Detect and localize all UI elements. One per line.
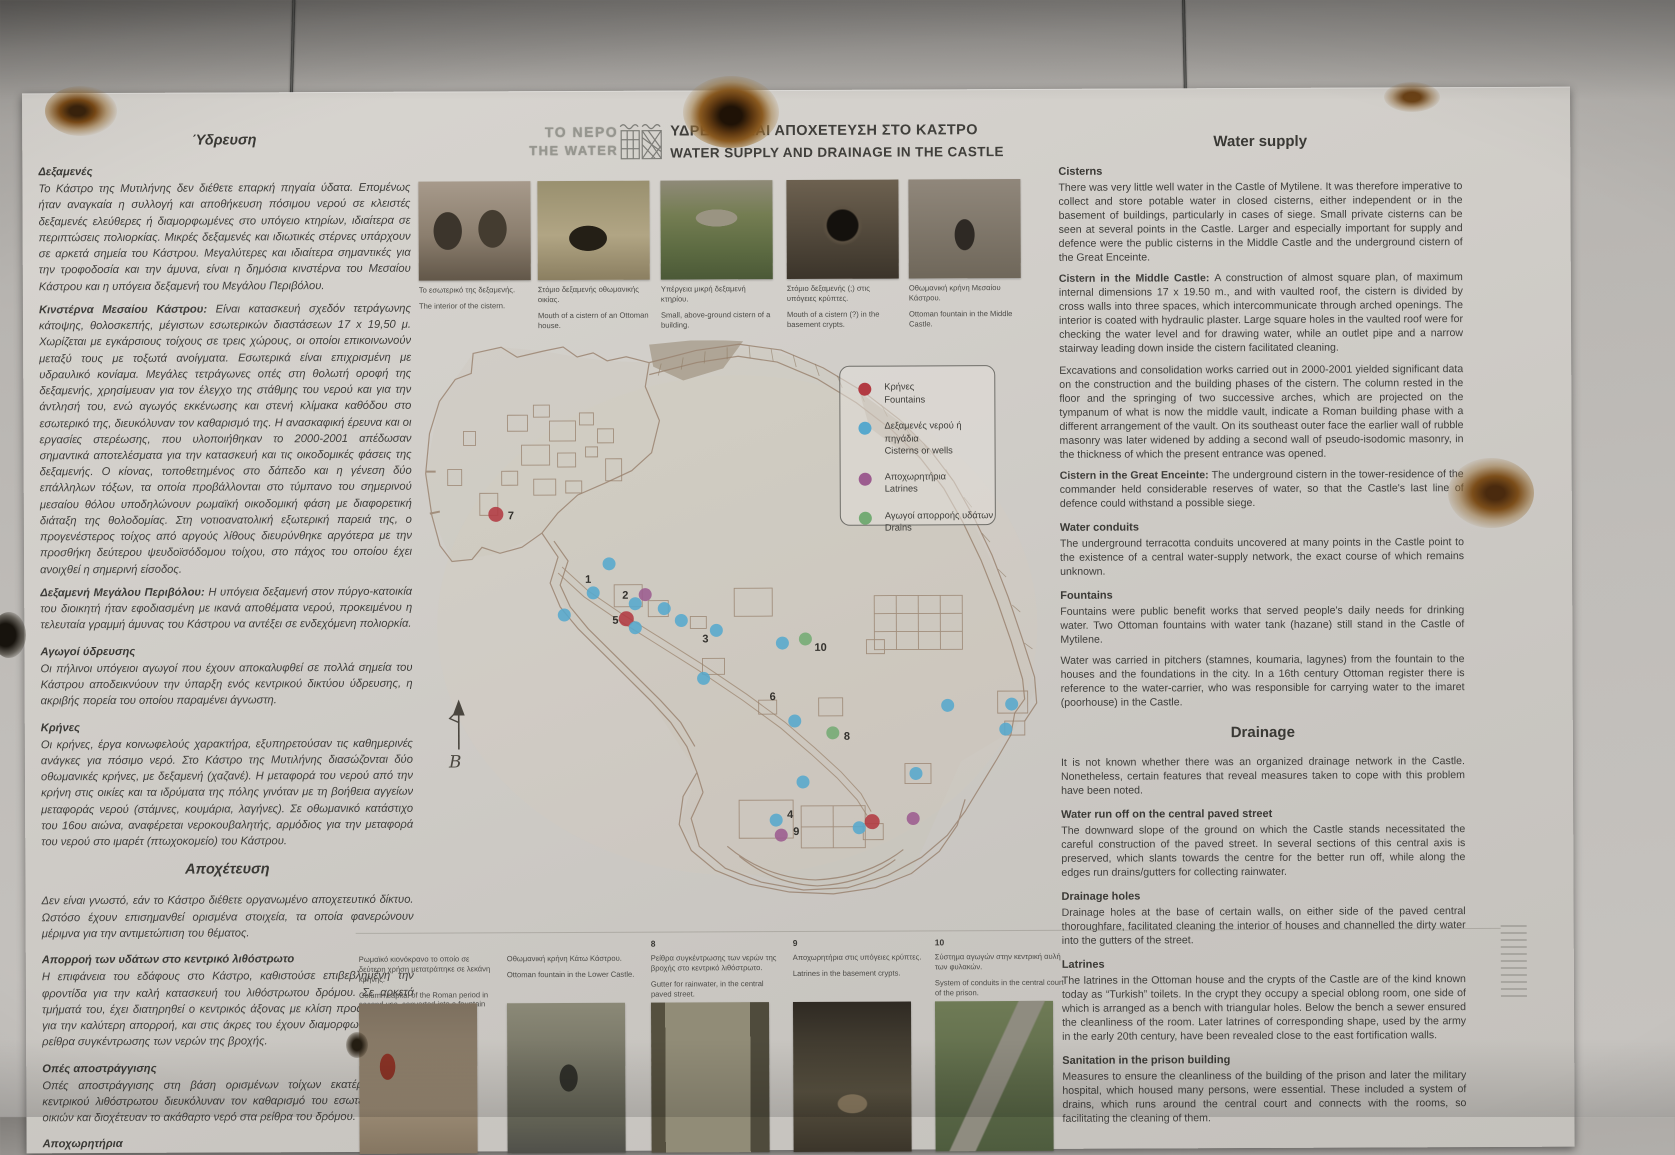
paragraph-lead: Cistern in the Great Enceinte: (1060, 469, 1212, 482)
wall-background: ΤΟ ΝΕΡΟ THE WATER ΥΔΡΕΥΣΗ ΚΑΙ ΑΠΟΧΕΤΕΥΣΗ… (0, 0, 1675, 1117)
legend-label: ΚρήνεςFountains (884, 380, 994, 406)
map-location-number: 6 (770, 691, 776, 703)
top-photo-block: Στόμιο δεξαμενής οθωμανικής οικίας.Mouth… (537, 181, 650, 331)
paragraph: Κινστέρνα Μεσαίου Κάστρου: Είναι κατασκε… (39, 301, 412, 579)
map-marker-number: 4 (787, 809, 794, 821)
photo-caption-greek: Στόμιο δεξαμενής οθωμανικής οικίας. (538, 285, 650, 305)
photo-thumbnail (359, 1003, 478, 1154)
map-marker (1005, 698, 1018, 711)
paragraph: Cistern in the Great Enceinte: The under… (1060, 467, 1464, 511)
section-heading: Fountains (1060, 587, 1464, 603)
photo-caption-greek: Ρωμαϊκό κιονόκρανο το οποίο σε δεύτερη χ… (359, 954, 493, 984)
photo-number (359, 939, 493, 950)
section-title: Drainage (1061, 722, 1465, 744)
paragraph: Drainage holes at the base of certain wa… (1062, 904, 1466, 948)
paragraph: Το Κάστρο της Μυτιλήνης δεν διέθετε επαρ… (38, 180, 410, 295)
hanging-wire-left (290, 0, 296, 102)
legend-color-dot (859, 472, 872, 485)
section-title: Ύδρευση (38, 130, 410, 153)
legend-label: ΑποχωρητήριαLatrines (885, 470, 995, 496)
legend-label-english: Latrines (885, 482, 995, 495)
map-marker (999, 723, 1012, 736)
map-marker (826, 726, 839, 739)
map-marker (853, 821, 866, 834)
photo-thumbnail (935, 1001, 1054, 1152)
bottom-photo-block: Οθωμανική κρήνη Κάτω Κάστρου.Ottoman fou… (507, 939, 641, 980)
map-marker-number: 8 (844, 731, 850, 743)
map-marker (587, 586, 600, 599)
paragraph: The downward slope of the ground on whic… (1061, 822, 1465, 880)
logo-text-english: THE WATER (529, 143, 618, 158)
photo-caption-greek: Σύστημα αγωγών στην κεντρική αυλή των φυ… (935, 952, 1069, 972)
paragraph: The underground terracotta conduits unco… (1060, 535, 1464, 579)
bottom-photo-block: 8Ρείθρα συγκέντρωσης των νερών της βροχή… (651, 938, 785, 999)
legend-item: ΚρήνεςFountains (858, 380, 994, 407)
map-marker (603, 557, 616, 570)
photo-caption-english: Mouth of a cistern of an Ottoman house. (538, 310, 650, 330)
photo-number: 10 (935, 937, 1069, 948)
photo-thumbnail (660, 180, 772, 279)
photo-caption-greek: Υπέργεια μικρή δεξαμενή κτηρίου. (661, 284, 773, 304)
map-marker-number: 7 (508, 510, 514, 522)
top-photo-block: Το εσωτερικό της δεξαμενής.The interior … (418, 181, 531, 311)
map-legend: ΚρήνεςFountainsΔεξαμενές νερού ή πηγάδια… (839, 365, 996, 526)
map-marker (776, 637, 789, 650)
section-heading: Κρήνες (41, 718, 413, 736)
legend-label-english: Fountains (884, 393, 994, 406)
paragraph-lead: Cistern in the Middle Castle: (1059, 272, 1215, 285)
paragraph: Water was carried in pitchers (stamnes, … (1060, 652, 1464, 710)
photo-caption-english: The interior of the cistern. (419, 301, 531, 311)
paragraph: Οι πήλινοι υπόγειοι αγωγοί που έχουν απο… (40, 659, 412, 709)
credits-small-print (1501, 925, 1527, 1001)
photo-thumbnail (908, 179, 1020, 278)
map-marker (907, 812, 920, 825)
section-heading: Δεξαμενές (38, 163, 410, 181)
legend-label-greek: Δεξαμενές νερού ή πηγάδια (884, 419, 994, 445)
paragraph: There was very little well water in the … (1058, 179, 1462, 265)
map-marker-number: 1 (585, 574, 591, 586)
photo-thumbnail (651, 1002, 770, 1153)
legend-color-dot (858, 383, 871, 396)
map-marker (658, 602, 671, 615)
map-marker (558, 608, 571, 621)
dark-spot (0, 612, 26, 658)
bottom-photo-block: 9Αποχωρητήρια στις υπόγειες κρύπτες.Latr… (793, 937, 927, 978)
legend-item: Δεξαμενές νερού ή πηγάδιαCisterns or wel… (858, 419, 994, 457)
photo-caption-greek: Ρείθρα συγκέντρωσης των νερών της βροχής… (651, 953, 785, 973)
map-marker-number: 2 (622, 590, 628, 602)
legend-color-dot (859, 511, 872, 524)
map-marker (796, 775, 809, 788)
map-marker (909, 767, 922, 780)
photo-thumbnail (418, 181, 530, 280)
photo-caption-greek: Οθωμανική κρήνη Μεσαίου Κάστρου. (909, 283, 1021, 303)
legend-label: Δεξαμενές νερού ή πηγάδιαCisterns or wel… (884, 419, 994, 457)
photo-caption-english: Ottoman fountain in the Middle Castle. (909, 309, 1021, 329)
hanging-wire-right (1182, 0, 1187, 97)
legend-label-english: Drains (885, 521, 995, 534)
legend-label-english: Cisterns or wells (885, 444, 995, 457)
legend-label: Αγωγοί απορροής υδάτωνDrains (885, 509, 995, 535)
photo-thumbnail (507, 1003, 626, 1154)
map-marker (710, 624, 723, 637)
section-heading: Sanitation in the prison building (1062, 1052, 1466, 1068)
water-logo-icon (618, 121, 664, 163)
map-marker-number: 5 (612, 615, 618, 627)
panel-title-english: WATER SUPPLY AND DRAINAGE IN THE CASTLE (670, 144, 1004, 160)
section-heading: Αγωγοί ύδρευσης (40, 642, 412, 660)
map-marker (629, 621, 642, 634)
paragraph: Excavations and consolidation works carr… (1059, 362, 1463, 462)
legend-label-greek: Αγωγοί απορροής υδάτων (885, 509, 995, 522)
photo-number: 8 (651, 938, 785, 949)
photo-caption-english: System of conduits in the central court … (935, 978, 1069, 998)
paragraph: The latrines in the Ottoman house and th… (1062, 972, 1466, 1044)
legend-color-dot (858, 422, 871, 435)
panel-title-greek: ΥΔΡΕΥΣΗ ΚΑΙ ΑΠΟΧΕΤΕΥΣΗ ΣΤΟ ΚΑΣΤΡΟ (670, 122, 978, 139)
logo-text-greek: ΤΟ ΝΕΡΟ (545, 124, 618, 140)
photo-caption-greek: Αποχωρητήρια στις υπόγειες κρύπτες. (793, 952, 927, 962)
map-marker-number: 3 (702, 633, 708, 645)
legend-item: ΑποχωρητήριαLatrines (859, 470, 995, 497)
bottom-photo-block: 10Σύστημα αγωγών στην κεντρική αυλή των … (935, 937, 1069, 998)
english-text-column: Water supplyCisternsThere was very littl… (1058, 117, 1466, 1134)
map-marker (629, 597, 642, 610)
photo-caption-english: Small, above-ground cistern of a buildin… (661, 310, 773, 330)
photo-caption-greek: Το εσωτερικό της δεξαμενής. (419, 285, 531, 295)
map-marker (488, 507, 503, 522)
map-marker (941, 699, 954, 712)
map-marker-number: 10 (814, 642, 826, 654)
paragraph: Οι κρήνες, έργα κοινωφελούς χαρακτήρα, ε… (41, 735, 413, 850)
photo-caption-greek: Οθωμανική κρήνη Κάτω Κάστρου. (507, 954, 641, 964)
paragraph-lead: Κινστέρνα Μεσαίου Κάστρου: (39, 303, 216, 316)
photo-caption-greek: Στόμιο δεξαμενής (;) στις υπόγειες κρύπτ… (787, 284, 899, 304)
paragraph: Measures to ensure the cleanliness of th… (1062, 1068, 1466, 1126)
legend-label-greek: Κρήνες (884, 380, 994, 393)
paragraph: Fountains were public benefit works that… (1060, 603, 1464, 647)
photo-number: 9 (793, 937, 927, 948)
legend-label-greek: Αποχωρητήρια (885, 470, 995, 483)
photo-thumbnail (537, 181, 649, 280)
photo-caption-english: Mouth of a cistern (?) in the basement c… (787, 309, 899, 329)
legend-item: Αγωγοί απορροής υδάτωνDrains (859, 509, 995, 536)
top-photo-block: Οθωμανική κρήνη Μεσαίου Κάστρου.Ottoman … (908, 179, 1021, 329)
map-marker (639, 588, 652, 601)
section-heading: Cisterns (1058, 163, 1462, 179)
paragraph: Δεν είναι γνωστό, εάν το Κάστρο διέθετε … (41, 892, 413, 942)
photo-caption-english: Latrines in the basement crypts. (793, 968, 927, 978)
bottom-photo-block: Ρωμαϊκό κιονόκρανο το οποίο σε δεύτερη χ… (359, 939, 493, 1020)
map-marker (775, 829, 788, 842)
section-heading: Water run off on the central paved stree… (1061, 807, 1465, 823)
map-marker (697, 672, 710, 685)
map-marker-number: 9 (793, 826, 799, 838)
north-label: B (448, 752, 462, 772)
section-heading: Latrines (1062, 956, 1466, 972)
paragraph: Δεξαμενή Μεγάλου Περιβόλου: Η υπόγεια δε… (40, 584, 412, 634)
photo-caption-english: Gutter for rainwater, in the central pav… (651, 979, 785, 999)
section-title: Αποχέτευση (41, 859, 413, 882)
top-photo-block: Στόμιο δεξαμενής (;) στις υπόγειες κρύπτ… (786, 180, 899, 330)
map-marker (788, 714, 801, 727)
photo-caption-english: Ottoman fountain in the Lower Castle. (507, 970, 641, 980)
paragraph: It is not known whether there was an org… (1061, 754, 1465, 798)
top-photo-block: Υπέργεια μικρή δεξαμενή κτηρίου.Small, a… (660, 180, 773, 330)
information-panel: ΤΟ ΝΕΡΟ THE WATER ΥΔΡΕΥΣΗ ΚΑΙ ΑΠΟΧΕΤΕΥΣΗ… (22, 87, 1575, 1154)
paragraph-lead: Δεξαμενή Μεγάλου Περιβόλου: (40, 586, 208, 599)
north-arrow: B (448, 699, 465, 772)
section-heading: Drainage holes (1061, 889, 1465, 905)
paragraph: Cistern in the Middle Castle: A construc… (1059, 270, 1463, 356)
section-heading: Water conduits (1060, 519, 1464, 535)
photo-number (507, 939, 641, 950)
photo-thumbnail (786, 180, 898, 279)
photo-thumbnail (793, 1002, 912, 1153)
section-title: Water supply (1058, 131, 1462, 153)
map-marker (799, 632, 812, 645)
map-marker (675, 614, 688, 627)
map-marker (770, 814, 783, 827)
map-marker (865, 814, 880, 829)
